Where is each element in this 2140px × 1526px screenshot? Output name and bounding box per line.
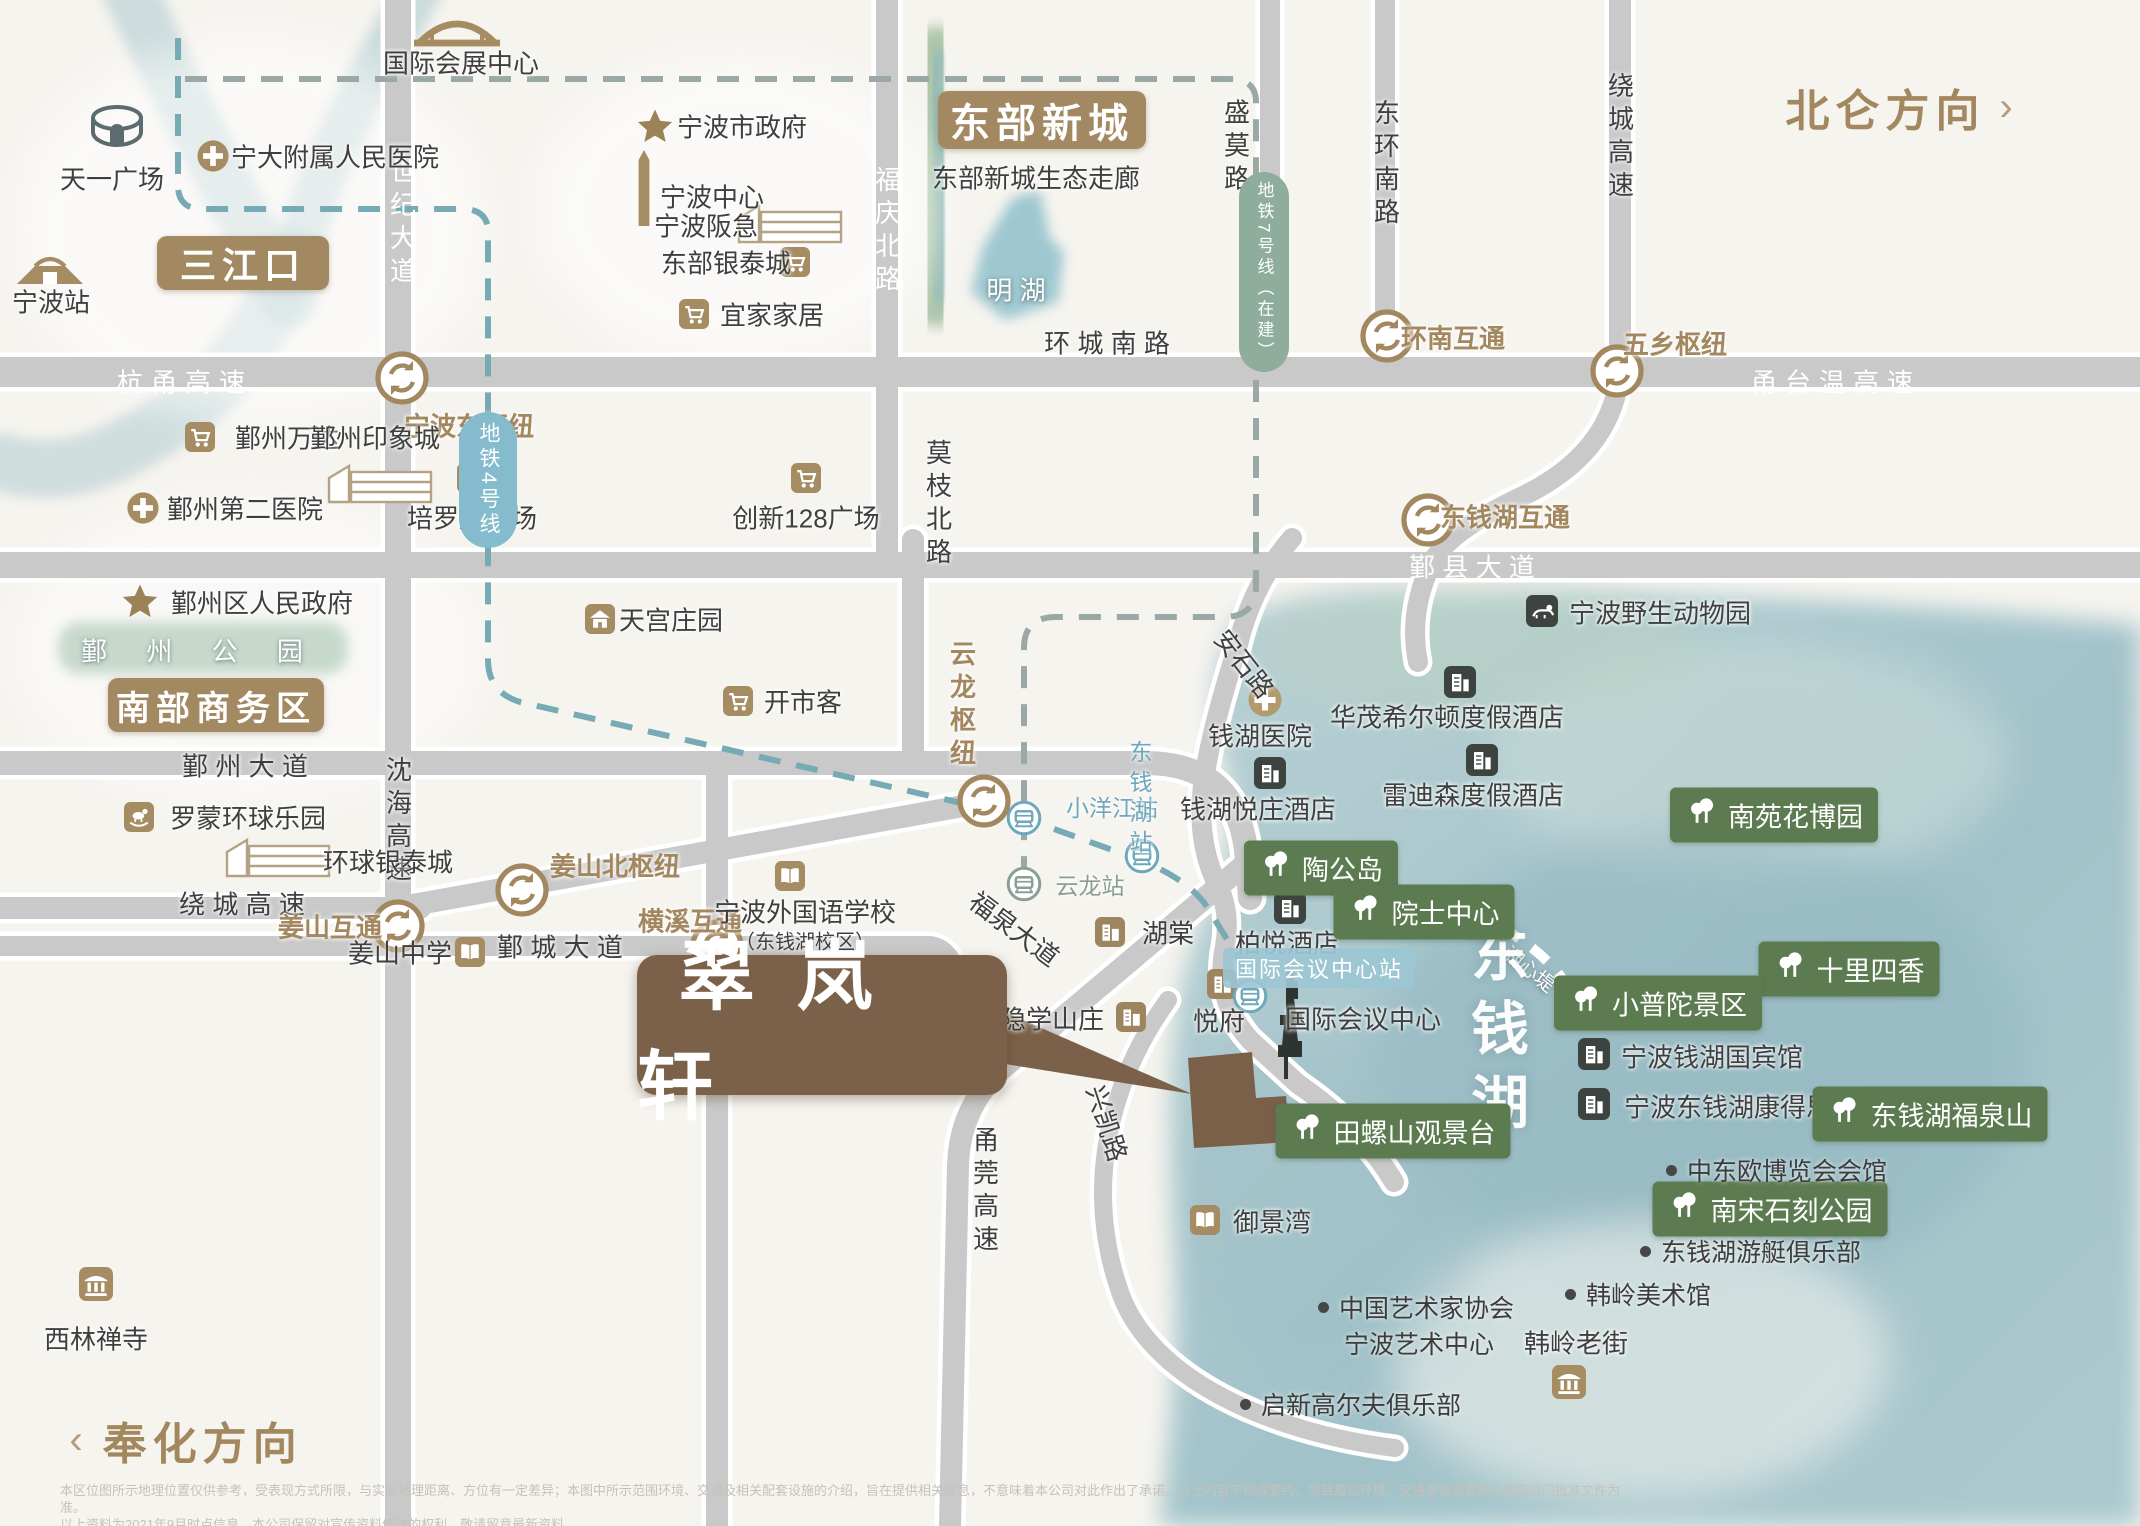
nanyuan-flower-expo: 南苑花博园: [1670, 788, 1878, 843]
yinzhou-wanda-icon: [185, 422, 215, 452]
mozhi-north-road: 莫枝北路: [920, 439, 957, 571]
yinzhou-no2-hospital-icon: [126, 491, 160, 525]
costco-icon: [723, 686, 753, 716]
yinzhou-no2-hospital-label: 鄞州第二医院: [167, 490, 323, 527]
universal-intime-icon: [223, 832, 333, 884]
hilton-resort-label: 华茂希尔顿度假酒店: [1330, 698, 1564, 735]
yinzhou-impression-city-label: 鄞州印象城: [310, 419, 440, 456]
metro-line4: 地铁4号线: [459, 412, 517, 548]
nanyuan-flower-expo-label: 南苑花博园: [1728, 796, 1863, 835]
tree-icon: [1774, 949, 1808, 990]
bullet-dot: [1240, 1399, 1251, 1410]
radisson-resort-icon: [1466, 744, 1498, 776]
disclaimer: 本区位图所示地理位置仅供参考，受表现方式所限，与实际地理距离、方位有一定差异；本…: [60, 1482, 1620, 1526]
huancheng-south-road: 环 城 南 路: [1044, 324, 1170, 361]
qianhu-yuezhuang-hotel-icon: [1254, 757, 1286, 789]
qianhu-hospital-label: 钱湖医院: [1208, 717, 1312, 754]
ningda-hospital-icon: [196, 139, 230, 173]
yinxian-avenue: 鄞 县 大 道: [1409, 548, 1535, 585]
eastern-newtown: 东部新城: [938, 91, 1146, 149]
huannan-interchange-label: 环南互通: [1401, 319, 1505, 356]
tree-icon: [1685, 795, 1719, 836]
tianyi-square-icon: [86, 101, 148, 151]
yujingwan-icon: [1190, 1205, 1220, 1235]
qixin-golf-club-label: 启新高尔夫俱乐部: [1261, 1386, 1461, 1422]
ceec-expo-hall: 中东欧博览会会馆: [1666, 1152, 1887, 1188]
yuefu-label: 悦府: [1193, 1002, 1245, 1039]
icc-label: 国际会议中心: [1285, 1000, 1441, 1037]
jiangshan-middle-school-icon: [455, 937, 485, 967]
bullet-dot: [1565, 1289, 1576, 1300]
jiangshan-middle-school-label: 姜山中学: [348, 934, 452, 971]
wuxiang-hub-label: 五乡枢纽: [1623, 325, 1727, 362]
metro-line7: 地铁7号线（在建）: [1239, 172, 1289, 372]
innovation-128-plaza-label: 创新128广场: [732, 499, 879, 536]
qianhu-yuezhuang-hotel-label: 钱湖悦庄酒店: [1180, 790, 1336, 827]
raocheng-expwy-north: 绕城高速: [1602, 72, 1639, 204]
costco-label: 开市客: [764, 683, 842, 720]
hangyong-expwy: 杭甬高速: [117, 363, 253, 400]
tiangong-manor-icon: [585, 604, 615, 634]
chevron-right-icon: ›: [1999, 85, 2018, 130]
tree-icon: [1259, 848, 1293, 889]
tianluoshan-viewpoint-label: 田螺山观景台: [1334, 1112, 1496, 1151]
yujingwan-label: 御景湾: [1233, 1203, 1311, 1240]
property-badge-cuilanxuan: 翠岚轩: [637, 955, 1007, 1095]
ningbo-foreign-language-school-icon: [775, 861, 805, 891]
xiaoputuo-scenic: 小普陀景区: [1554, 976, 1762, 1031]
tree-icon: [1828, 1094, 1862, 1135]
jiangshan-north-hub-label: 姜山北枢纽: [550, 847, 680, 884]
artists-association: 中国艺术家协会: [1318, 1289, 1514, 1325]
ningbo-gov-label: 宁波市政府: [677, 108, 807, 145]
beilun-direction-label: 北仑方向: [1785, 75, 1985, 139]
hutang-label: 湖棠: [1142, 914, 1194, 951]
ningda-hospital-label: 宁大附属人民医院: [231, 138, 439, 175]
lomon-universal-park-icon: [124, 802, 154, 832]
ningbo-art-center-label: 宁波艺术中心: [1344, 1325, 1494, 1361]
sanjiangkou: 三江口: [157, 236, 329, 290]
minghu-lake: 明 湖: [986, 271, 1045, 308]
tianyi-square-label: 天一广场: [60, 160, 164, 197]
qianhu-state-guesthouse-icon: [1578, 1038, 1610, 1070]
park-hyatt-hotel-icon: [1274, 892, 1306, 924]
tiangong-manor-label: 天宫庄园: [619, 601, 723, 638]
qianhu-state-guesthouse-label: 宁波钱湖国宾馆: [1621, 1038, 1803, 1075]
hilton-resort-icon: [1444, 666, 1476, 698]
academician-center-label: 院士中心: [1392, 893, 1500, 932]
century-avenue: 世纪大道: [384, 158, 421, 290]
yinzhou-gov-icon: [119, 582, 161, 622]
taogong-island-label: 陶公岛: [1302, 849, 1383, 888]
fenghua-direction: ‹奉化方向: [69, 1408, 302, 1472]
bullet-dot: [1640, 1246, 1651, 1257]
cordis-hotel-icon: [1578, 1088, 1610, 1120]
hutang-icon: [1095, 917, 1125, 947]
ningbo-gov-icon: [634, 107, 676, 147]
shilisixiang-label: 十里四香: [1817, 950, 1925, 989]
shilisixiang: 十里四香: [1759, 942, 1940, 997]
tree-icon: [1569, 983, 1603, 1024]
artists-association-label: 中国艺术家协会: [1339, 1289, 1514, 1325]
ikea-icon: [679, 299, 709, 329]
disclaimer-line2: 以上资料为2021年9月时点信息，本公司保留对宣传资料修改的权利，敬请留意最新资…: [60, 1516, 1620, 1526]
yinzhou-park: 鄞 州 公 园: [81, 632, 319, 669]
ningbo-art-center: 宁波艺术中心: [1344, 1325, 1494, 1361]
bullet-dot: [1318, 1302, 1329, 1313]
disclaimer-line1: 本区位图所示地理位置仅供参考，受表现方式所限，与实际地理距离、方位有一定差异；本…: [60, 1482, 1620, 1516]
dongqianhu-fuquanshan-label: 东钱湖福泉山: [1871, 1095, 2033, 1134]
yacht-club-label: 东钱湖游艇俱乐部: [1661, 1233, 1861, 1269]
xilin-temple-icon: [79, 1267, 113, 1301]
tree-icon: [1349, 892, 1383, 933]
universal-intime-label: 环球银泰城: [323, 843, 453, 880]
fuqing-north-road: 福庆北路: [869, 166, 906, 298]
wildlife-park-label: 宁波野生动物园: [1569, 594, 1751, 631]
southern-song-stone-carving-park: 南宋石刻公园: [1653, 1182, 1888, 1237]
xilin-temple-label: 西林禅寺: [44, 1320, 148, 1357]
tianluoshan-viewpoint: 田螺山观景台: [1276, 1104, 1511, 1159]
yinzhou-gov-label: 鄞州区人民政府: [171, 584, 353, 621]
donghuan-south-road: 东环南路: [1368, 99, 1405, 231]
radisson-resort-label: 雷迪森度假酒店: [1382, 776, 1564, 813]
yunlong-hub-icon: [956, 773, 1012, 829]
map-canvas: 杭甬高速甬台温高速环 城 南 路鄞 县 大 道鄞 州 大 道绕 城 高 速鄞 城…: [0, 0, 2140, 1526]
southern-cbd: 南部商务区: [108, 678, 324, 732]
fenghua-direction-label: 奉化方向: [103, 1408, 303, 1472]
ceec-expo-hall-label: 中东欧博览会会馆: [1687, 1152, 1887, 1188]
hanling-art-museum-label: 韩岭美术馆: [1586, 1276, 1711, 1312]
southern-song-stone-carving-park-label: 南宋石刻公园: [1711, 1190, 1873, 1229]
yinxue-villa-label: 隐学山庄: [1000, 1000, 1104, 1037]
qixin-golf-club: 启新高尔夫俱乐部: [1240, 1386, 1461, 1422]
jiangshan-north-hub-icon: [494, 862, 550, 918]
bullet-dot: [1666, 1165, 1677, 1176]
chevron-left-icon: ‹: [69, 1418, 88, 1463]
hanling-art-museum: 韩岭美术馆: [1565, 1276, 1711, 1312]
wildlife-park-icon: [1526, 595, 1558, 627]
ikea-label: 宜家家居: [720, 296, 824, 333]
ningbo-station-label: 宁波站: [12, 283, 90, 320]
yunlong-hub-label: 云龙枢纽: [944, 640, 981, 772]
tree-icon: [1668, 1189, 1702, 1230]
eastern-intime-label: 东部银泰城: [661, 244, 791, 281]
innovation-128-plaza-icon: [791, 463, 821, 493]
shiji-hangyong-interchange-icon: [374, 350, 430, 406]
icc-station: 国际会议中心站: [1223, 948, 1415, 988]
dongqianhu-interchange-label: 东钱湖互通: [1440, 498, 1570, 535]
yunlong-station-label: 云龙站: [1056, 867, 1125, 901]
eco-corridor: 东部新城生态走廊: [932, 159, 1140, 196]
academician-center: 院士中心: [1334, 885, 1515, 940]
yongguan-expwy: 甬莞高速: [967, 1126, 1004, 1258]
yunlong-station-icon: [1006, 866, 1042, 902]
yacht-club: 东钱湖游艇俱乐部: [1640, 1233, 1861, 1269]
yincheng-avenue: 鄞 城 大 道: [497, 928, 623, 965]
beilun-direction: 北仑方向›: [1785, 75, 2018, 139]
dongqianhu-fuquanshan: 东钱湖福泉山: [1813, 1087, 2048, 1142]
yinxue-villa-icon: [1116, 1002, 1146, 1032]
xiaoputuo-scenic-label: 小普陀景区: [1612, 984, 1747, 1023]
intl-expo-center-label: 国际会展中心: [383, 44, 539, 81]
yinzhou-avenue: 鄞 州 大 道: [182, 747, 308, 784]
yongtaiwen-expwy: 甬台温高速: [1751, 363, 1921, 400]
dongqianhu-station-label: 东钱湖站: [1122, 740, 1156, 860]
hanling-old-street: 韩岭老街: [1524, 1324, 1628, 1361]
tree-icon: [1291, 1111, 1325, 1152]
hanling-pavilion-icon: [1552, 1365, 1586, 1399]
map-geometry: [0, 0, 2140, 1526]
ningbo-hankyu-label: 宁波阪急: [654, 207, 758, 244]
lomon-universal-park-label: 罗蒙环球乐园: [170, 799, 326, 836]
